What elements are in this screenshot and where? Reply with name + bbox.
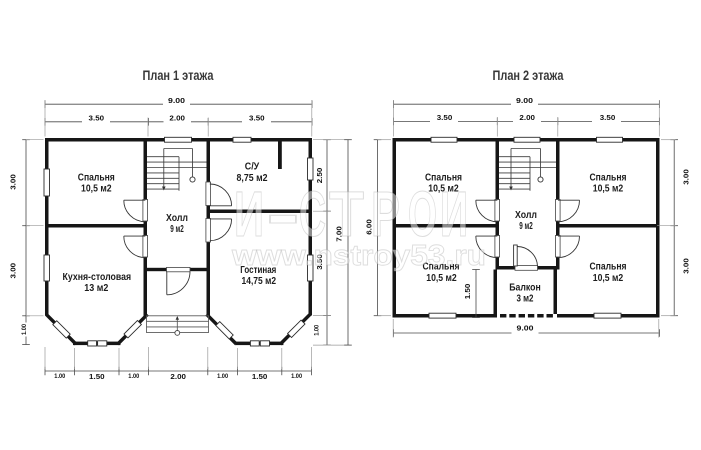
svg-text:3.50: 3.50 bbox=[437, 113, 453, 122]
svg-text:10,5 м2: 10,5 м2 bbox=[81, 184, 112, 195]
svg-text:С/У: С/У bbox=[245, 161, 260, 172]
svg-text:3.50: 3.50 bbox=[249, 113, 265, 122]
svg-text:10,5 м2: 10,5 м2 bbox=[593, 184, 624, 195]
svg-text:10,5 м2: 10,5 м2 bbox=[593, 273, 624, 284]
svg-text:2.00: 2.00 bbox=[169, 113, 185, 122]
svg-text:13 м2: 13 м2 bbox=[84, 283, 108, 294]
svg-text:9.00: 9.00 bbox=[517, 324, 534, 333]
svg-text:1.00: 1.00 bbox=[54, 373, 66, 380]
svg-text:1.50: 1.50 bbox=[89, 372, 105, 381]
svg-text:Холл: Холл bbox=[166, 213, 188, 224]
svg-text:Спальня: Спальня bbox=[590, 173, 627, 184]
svg-text:1.00: 1.00 bbox=[291, 373, 303, 380]
svg-text:2.00: 2.00 bbox=[170, 372, 186, 381]
svg-text:1.00: 1.00 bbox=[217, 373, 229, 380]
svg-text:www.nstroy53.ru: www.nstroy53.ru bbox=[231, 240, 486, 272]
svg-text:9 м2: 9 м2 bbox=[519, 221, 533, 232]
svg-text:3.50: 3.50 bbox=[600, 113, 616, 122]
svg-text:1.00: 1.00 bbox=[128, 373, 140, 380]
svg-text:14,75 м2: 14,75 м2 bbox=[242, 276, 277, 287]
svg-text:3.00: 3.00 bbox=[9, 263, 18, 279]
svg-text:3 м2: 3 м2 bbox=[517, 293, 534, 304]
svg-text:Холл: Холл bbox=[515, 210, 537, 221]
svg-text:3.00: 3.00 bbox=[9, 174, 18, 190]
svg-text:Спальня: Спальня bbox=[78, 173, 115, 184]
svg-text:1.00: 1.00 bbox=[21, 323, 28, 335]
svg-text:Спальня: Спальня bbox=[590, 262, 627, 273]
svg-text:3.00: 3.00 bbox=[682, 169, 691, 185]
svg-text:2.00: 2.00 bbox=[519, 113, 535, 122]
svg-text:1.00: 1.00 bbox=[314, 324, 321, 336]
svg-text:9.00: 9.00 bbox=[516, 96, 533, 105]
svg-text:1.50: 1.50 bbox=[463, 284, 472, 300]
svg-text:9 м2: 9 м2 bbox=[170, 224, 184, 235]
svg-text:10,5 м2: 10,5 м2 bbox=[426, 273, 457, 284]
svg-text:Балкон: Балкон bbox=[509, 283, 541, 294]
svg-text:План 1 этажа: План 1 этажа bbox=[143, 68, 214, 83]
svg-text:3.00: 3.00 bbox=[682, 258, 691, 274]
svg-text:1.50: 1.50 bbox=[252, 372, 268, 381]
svg-text:3.50: 3.50 bbox=[89, 113, 105, 122]
svg-text:План 2 этажа: План 2 этажа bbox=[493, 68, 564, 83]
svg-text:9.00: 9.00 bbox=[168, 96, 185, 105]
svg-text:Кухня-столовая: Кухня-столовая bbox=[63, 272, 132, 283]
